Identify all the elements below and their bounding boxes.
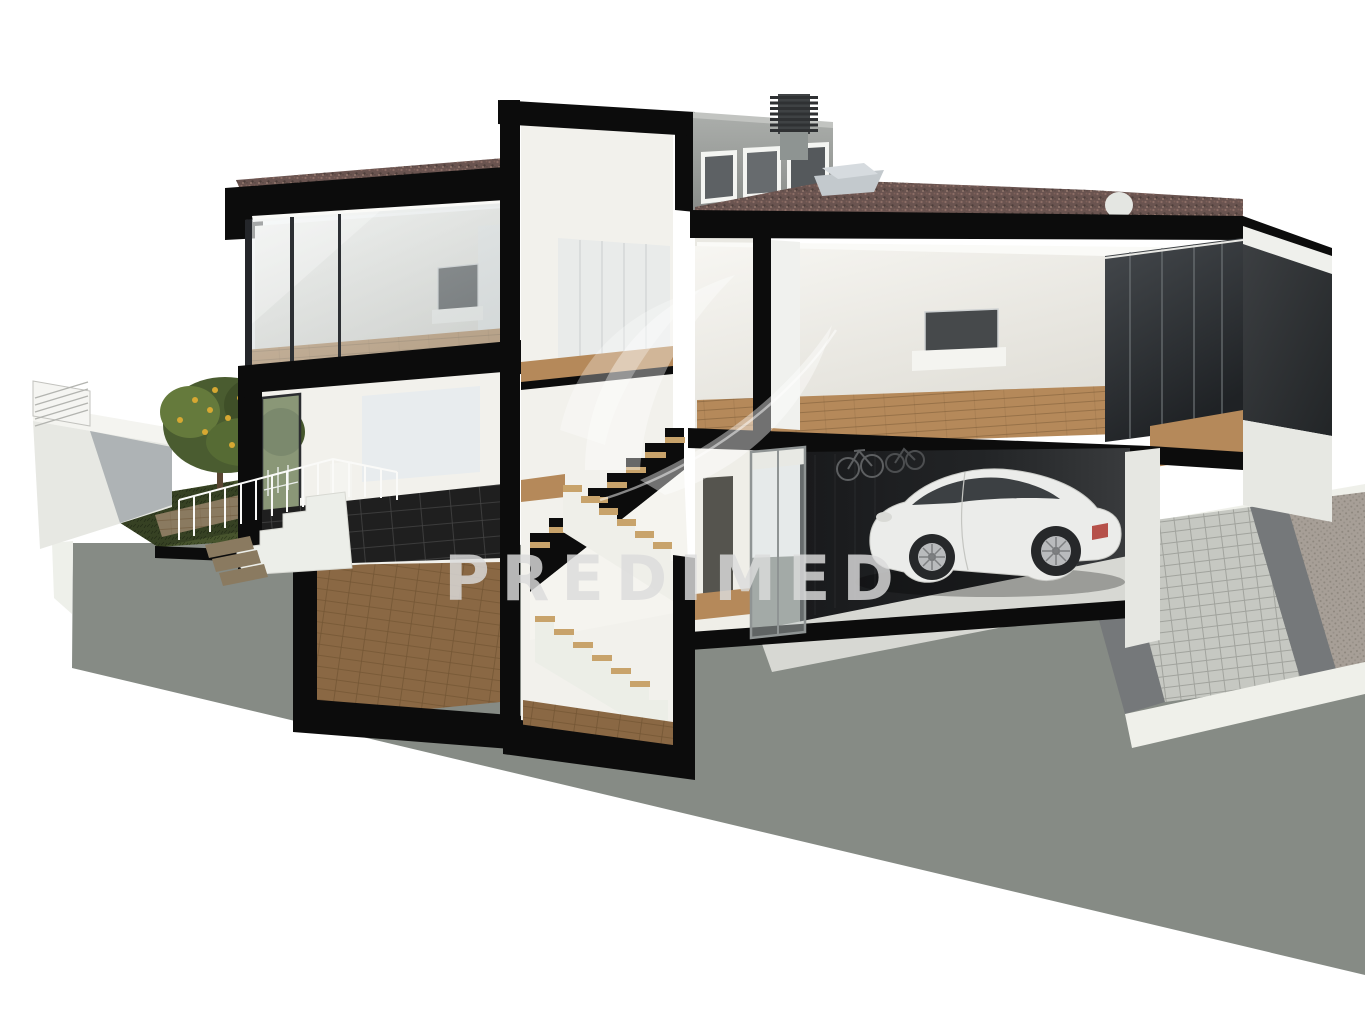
car-front-wheel bbox=[909, 534, 955, 580]
car-rear-wheel bbox=[1031, 526, 1081, 576]
left-wing bbox=[225, 158, 521, 570]
glazing-mullion-mid bbox=[290, 217, 294, 366]
garage-right-pillar bbox=[1125, 448, 1160, 648]
tower-left-cut-wall bbox=[500, 100, 520, 738]
chimney-base bbox=[780, 132, 808, 160]
watermark-text: PREDIMED bbox=[444, 542, 906, 615]
right-facade-base bbox=[1243, 420, 1332, 522]
right-facade-dark bbox=[1243, 244, 1332, 436]
roof-dome-vent bbox=[1105, 192, 1133, 218]
car-headlight bbox=[876, 512, 892, 522]
glazing-mullion-left bbox=[245, 219, 252, 371]
glazing-mullion-right bbox=[338, 214, 341, 362]
render-canvas: PREDIMED bbox=[0, 0, 1365, 1024]
